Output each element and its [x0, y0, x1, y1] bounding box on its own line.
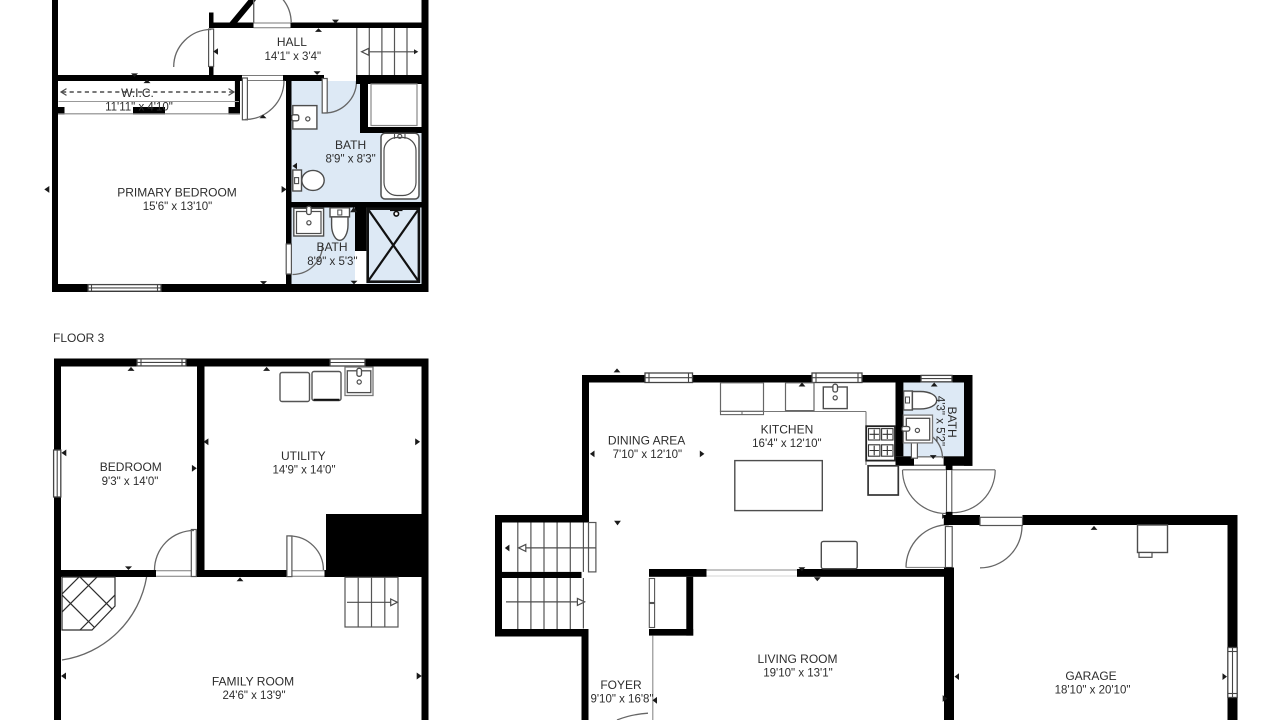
svg-text:HALL: HALL	[277, 35, 307, 49]
svg-text:8'9" x 5'3": 8'9" x 5'3"	[307, 256, 357, 268]
svg-text:PRIMARY BEDROOM: PRIMARY BEDROOM	[117, 186, 237, 200]
svg-text:W.I.C.: W.I.C.	[121, 86, 154, 100]
svg-text:GARAGE: GARAGE	[1065, 669, 1116, 683]
svg-text:14'1" x 3'4": 14'1" x 3'4"	[264, 51, 321, 63]
svg-text:16'4" x 12'10": 16'4" x 12'10"	[752, 438, 821, 450]
svg-text:FOYER: FOYER	[600, 678, 642, 692]
svg-text:BATH: BATH	[335, 138, 366, 152]
svg-text:11'11" x 4'10": 11'11" x 4'10"	[105, 102, 173, 114]
svg-text:DINING AREA: DINING AREA	[608, 433, 685, 447]
svg-text:7'10" x 12'10": 7'10" x 12'10"	[613, 449, 682, 461]
svg-text:LIVING ROOM: LIVING ROOM	[757, 652, 837, 666]
svg-text:UTILITY: UTILITY	[281, 449, 326, 463]
svg-text:9'10" x 16'8": 9'10" x 16'8"	[590, 694, 653, 706]
svg-text:BEDROOM: BEDROOM	[100, 460, 162, 474]
svg-text:18'10" x 20'10": 18'10" x 20'10"	[1055, 684, 1131, 696]
svg-text:14'9" x 14'0": 14'9" x 14'0"	[272, 464, 335, 476]
svg-text:9'3" x 14'0": 9'3" x 14'0"	[102, 476, 159, 488]
svg-text:19'10" x 13'1": 19'10" x 13'1"	[763, 667, 832, 679]
svg-text:15'6" x 13'10": 15'6" x 13'10"	[143, 201, 212, 213]
svg-text:4'3" x 5'2": 4'3" x 5'2"	[934, 396, 946, 446]
svg-text:24'6" x 13'9": 24'6" x 13'9"	[222, 690, 285, 702]
svg-text:8'9" x 8'3": 8'9" x 8'3"	[325, 154, 375, 166]
svg-text:BATH: BATH	[945, 407, 959, 438]
svg-text:FLOOR 3: FLOOR 3	[53, 331, 105, 345]
svg-text:FAMILY ROOM: FAMILY ROOM	[212, 674, 294, 688]
svg-text:KITCHEN: KITCHEN	[761, 423, 814, 437]
svg-text:BATH: BATH	[316, 240, 347, 254]
